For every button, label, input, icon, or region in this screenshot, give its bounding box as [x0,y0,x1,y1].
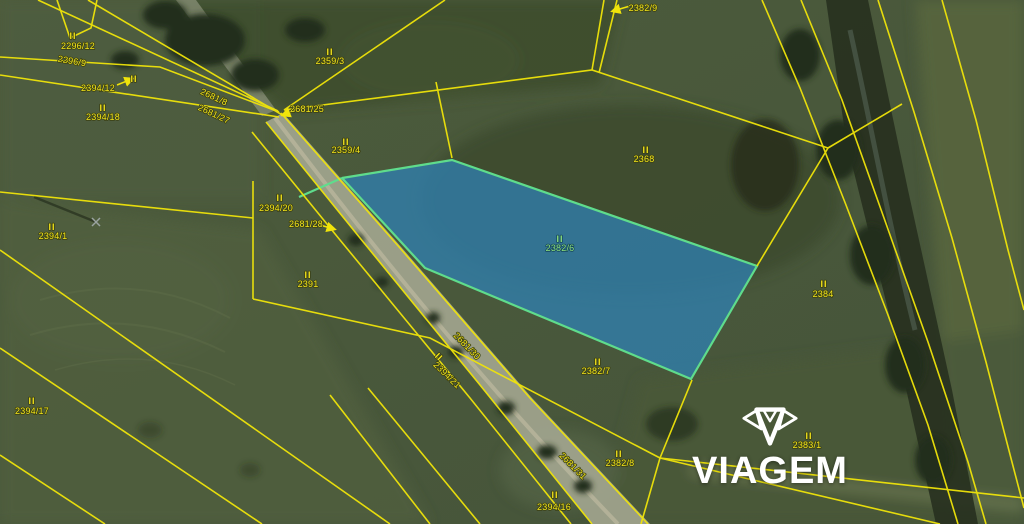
gem-icon [741,402,799,452]
svg-text:II: II [615,449,622,459]
parcel-label: 2382/9 [629,3,658,13]
parcel-label: 2394/18 [86,112,120,122]
grassland-marker: II [342,137,349,147]
svg-text:II: II [304,270,311,280]
grassland-marker: II [551,490,558,500]
svg-text:2382/9: 2382/9 [629,3,658,13]
svg-text:2394/20: 2394/20 [259,203,293,213]
svg-text:II: II [99,103,106,113]
parcel-label: 2394/20 [259,203,293,213]
grassland-marker: II [99,103,106,113]
svg-text:2394/18: 2394/18 [86,112,120,122]
parcel-label: 2382/8 [606,458,635,468]
grassland-marker: II [304,270,311,280]
parcel-label: 2382/7 [582,366,611,376]
viagem-logo: VIAGEM [650,402,890,488]
svg-text:II: II [69,31,76,41]
svg-text:II: II [326,47,333,57]
grassland-marker: II [556,234,563,244]
svg-text:2394/16: 2394/16 [537,502,571,512]
svg-text:2391: 2391 [298,279,319,289]
svg-text:2394/17: 2394/17 [15,406,49,416]
svg-text:2394/12: 2394/12 [81,83,115,93]
svg-text:2681/25: 2681/25 [290,104,324,114]
svg-text:2681/28: 2681/28 [289,219,323,229]
grassland-marker: II [69,31,76,41]
svg-text:II: II [551,490,558,500]
grassland-marker: II [130,74,137,84]
grassland-marker: II [820,279,827,289]
parcel-label: 2359/3 [316,56,345,66]
svg-text:II: II [130,74,137,84]
svg-text:II: II [276,193,283,203]
parcel-label: 2368 [634,154,655,164]
parcel-label: 2394/17 [15,406,49,416]
svg-text:II: II [28,396,35,406]
parcel-label: 2384 [813,289,834,299]
grassland-marker: II [615,449,622,459]
grassland-marker: II [48,222,55,232]
svg-text:II: II [642,145,649,155]
svg-text:II: II [820,279,827,289]
svg-text:2382/6: 2382/6 [546,243,575,253]
grassland-marker: II [594,357,601,367]
svg-text:II: II [48,222,55,232]
parcel-label: 2394/16 [537,502,571,512]
svg-text:2384: 2384 [813,289,834,299]
viagem-logo-text: VIAGEM [650,454,890,488]
parcel-label: 2391 [298,279,319,289]
parcel-label: 2382/6 [546,243,575,253]
grassland-marker: II [326,47,333,57]
parcel-label: 2681/28 [289,219,323,229]
svg-text:II: II [556,234,563,244]
cadastral-map-screenshot: 2296/12II2296/92394/12II2394/18II2359/3I… [0,0,1024,524]
svg-text:II: II [594,357,601,367]
parcel-label: 2394/12 [81,83,115,93]
svg-text:2296/12: 2296/12 [61,41,95,51]
svg-text:2368: 2368 [634,154,655,164]
svg-text:2382/8: 2382/8 [606,458,635,468]
svg-text:2394/1: 2394/1 [39,231,68,241]
svg-text:II: II [342,137,349,147]
parcel-label: 2296/12 [61,41,95,51]
parcel-label: 2394/1 [39,231,68,241]
grassland-marker: II [276,193,283,203]
svg-text:2359/3: 2359/3 [316,56,345,66]
svg-text:2382/7: 2382/7 [582,366,611,376]
grassland-marker: II [28,396,35,406]
grassland-marker: II [642,145,649,155]
parcel-label: 2681/25 [290,104,324,114]
